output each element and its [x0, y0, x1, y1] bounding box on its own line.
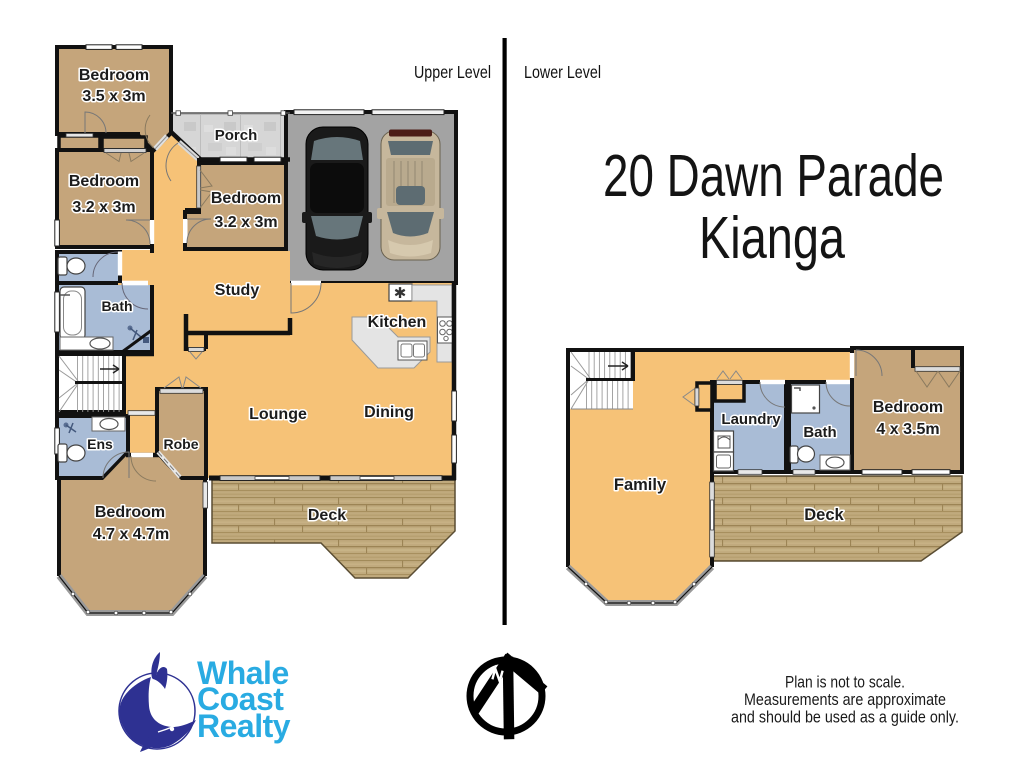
svg-text:Bedroom: Bedroom — [211, 190, 281, 207]
svg-text:Deck: Deck — [804, 506, 844, 524]
svg-text:Kianga: Kianga — [699, 205, 845, 271]
svg-text:3.2 x 3m: 3.2 x 3m — [72, 199, 135, 216]
svg-text:3.2 x 3m: 3.2 x 3m — [214, 214, 277, 231]
svg-text:4.7 x 4.7m: 4.7 x 4.7m — [93, 526, 170, 543]
svg-text:Bedroom: Bedroom — [79, 67, 149, 84]
svg-text:Robe: Robe — [164, 436, 199, 452]
svg-text:Measurements are approximate: Measurements are approximate — [744, 690, 946, 709]
svg-text:Bedroom: Bedroom — [69, 173, 139, 190]
svg-text:Upper Level: Upper Level — [414, 62, 491, 82]
svg-text:✱: ✱ — [394, 285, 407, 302]
svg-text:3.5 x 3m: 3.5 x 3m — [82, 88, 145, 105]
svg-text:Porch: Porch — [215, 127, 258, 144]
svg-text:Study: Study — [215, 282, 260, 299]
svg-text:Dining: Dining — [364, 404, 414, 421]
svg-text:Lounge: Lounge — [249, 406, 307, 423]
svg-text:Bedroom: Bedroom — [873, 399, 943, 416]
svg-text:Bedroom: Bedroom — [95, 504, 165, 521]
svg-text:Realty: Realty — [197, 708, 291, 744]
svg-text:Laundry: Laundry — [721, 411, 781, 428]
svg-text:Bath: Bath — [101, 298, 132, 314]
svg-text:Kitchen: Kitchen — [368, 314, 427, 331]
svg-text:Ens: Ens — [87, 436, 113, 452]
svg-text:Lower Level: Lower Level — [524, 62, 601, 82]
svg-text:Plan is not to scale.: Plan is not to scale. — [785, 673, 905, 692]
svg-text:and should be used as a guide: and should be used as a guide only. — [731, 708, 959, 727]
svg-text:Deck: Deck — [308, 507, 346, 524]
svg-text:Bath: Bath — [803, 424, 836, 441]
svg-text:20 Dawn Parade: 20 Dawn Parade — [603, 143, 944, 209]
svg-text:Family: Family — [614, 476, 667, 494]
svg-text:4 x 3.5m: 4 x 3.5m — [876, 421, 939, 438]
